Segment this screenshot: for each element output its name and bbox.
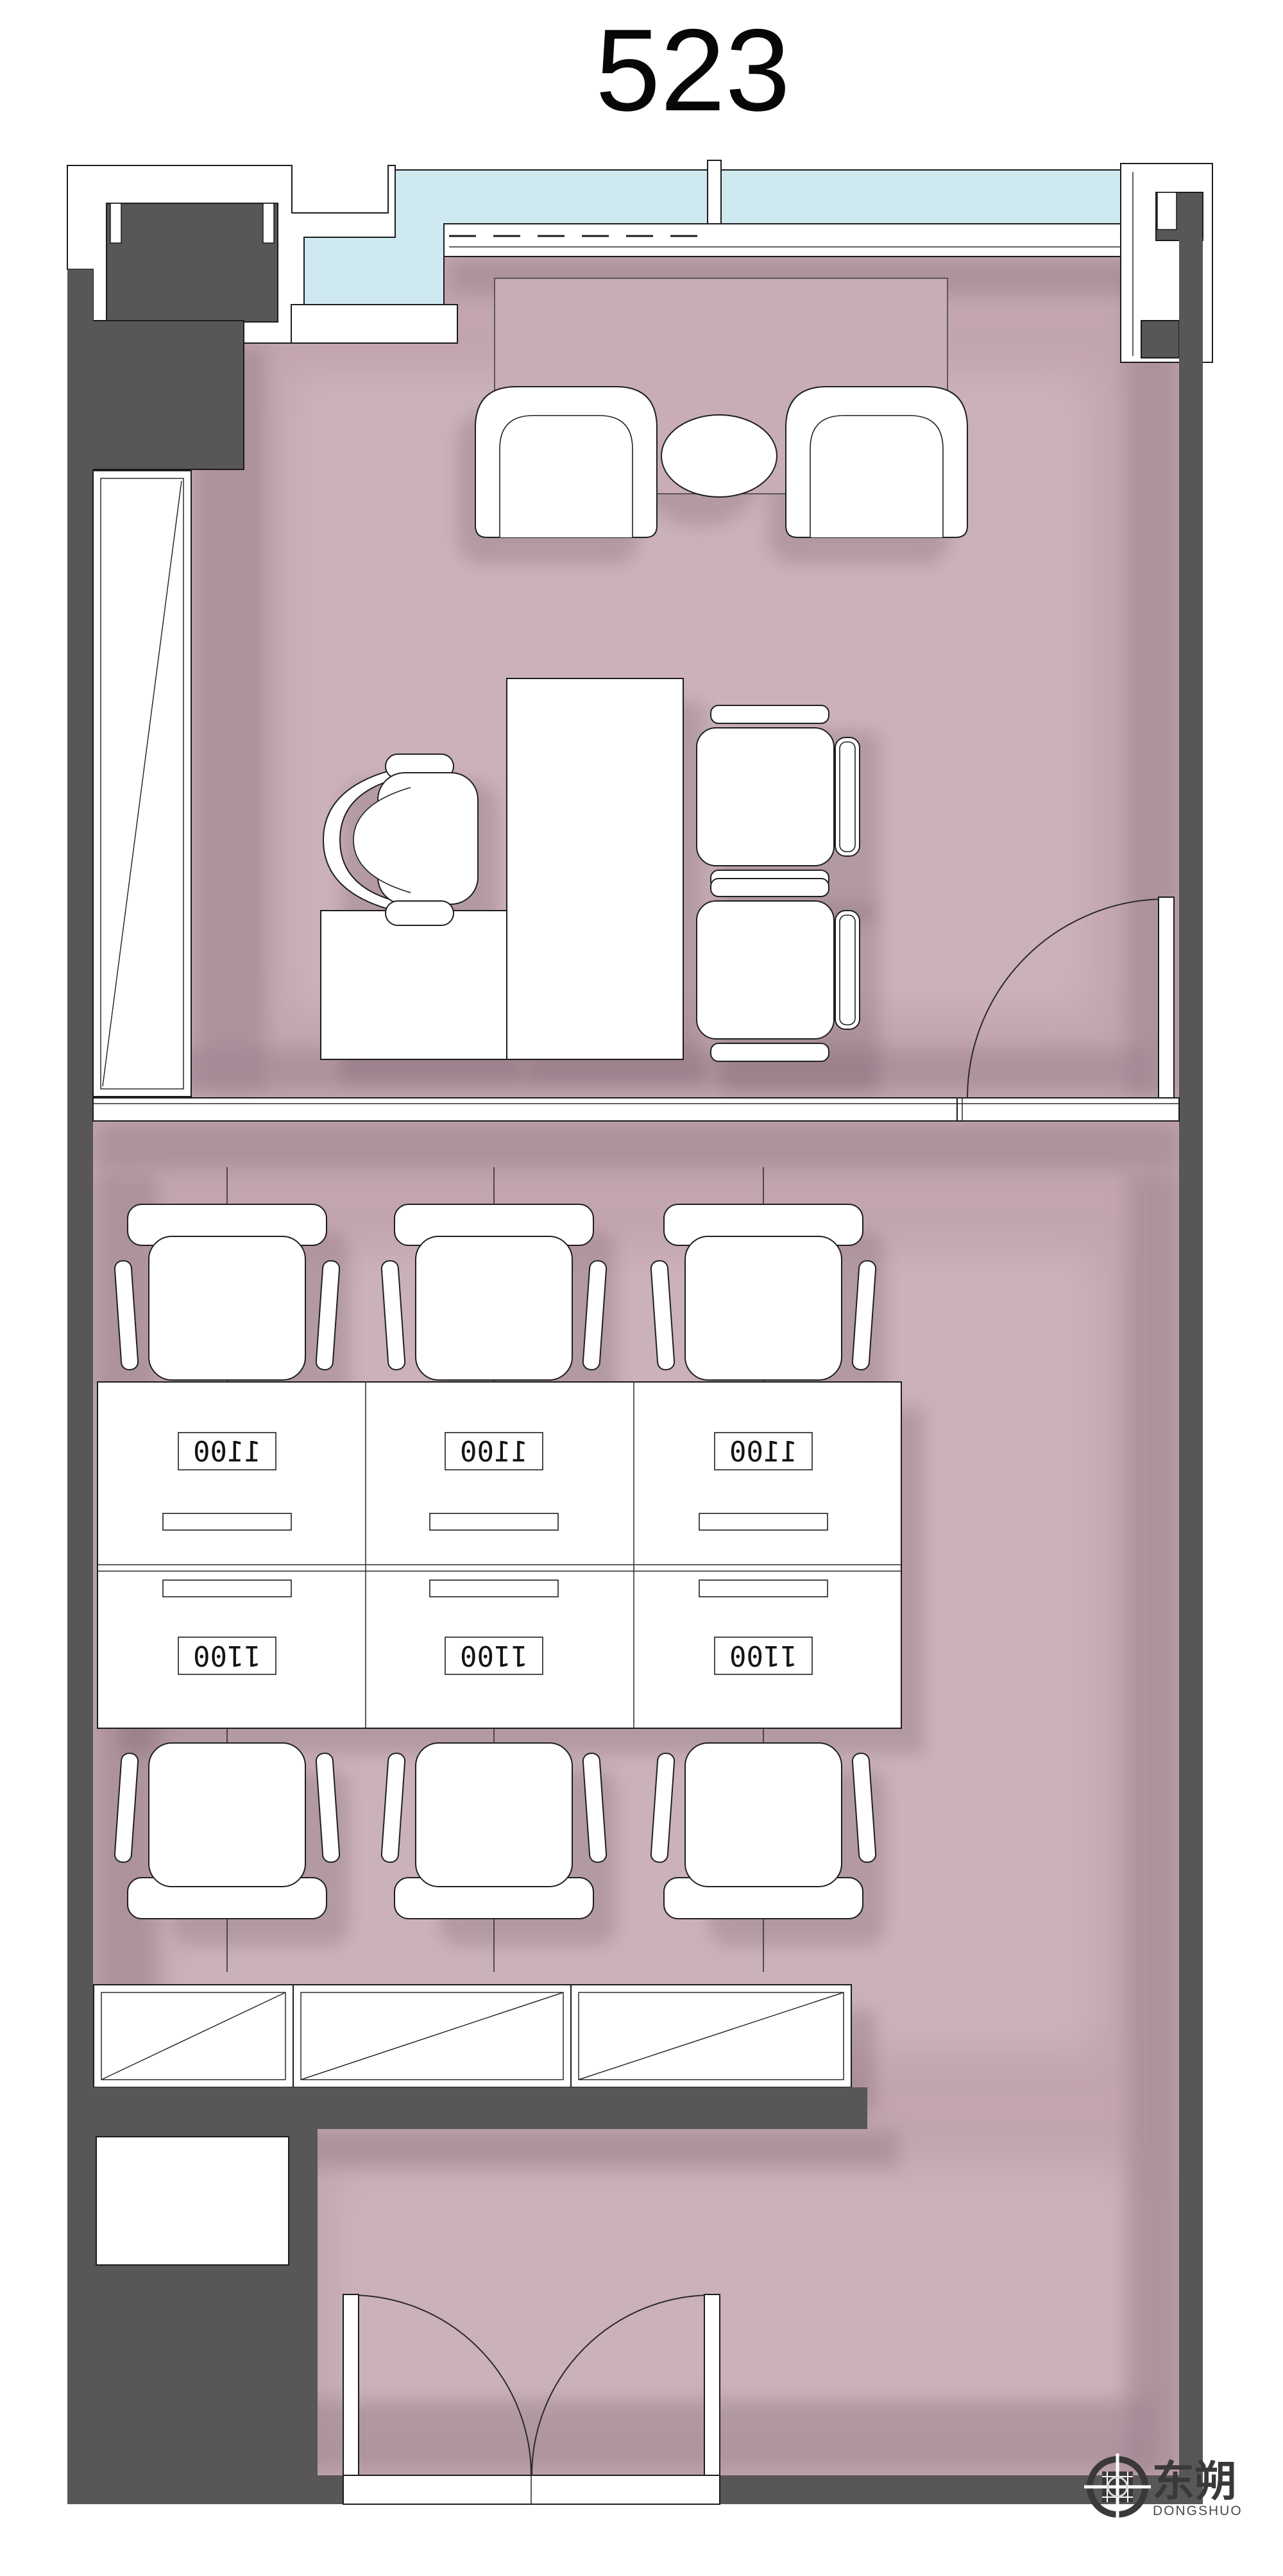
armchair-right — [786, 387, 967, 537]
room-number-title: 523 — [595, 4, 790, 135]
desk-dimension-text: 1100 — [729, 1436, 797, 1469]
desk-dimension-label: 1100 — [445, 1637, 543, 1674]
guest-chair-armrest — [711, 705, 829, 723]
wall-bottom-left — [67, 2475, 343, 2504]
desk-dimension-label: 1100 — [178, 1433, 276, 1470]
desk-drawer — [430, 1580, 558, 1597]
desk-dimension-text: 1100 — [460, 1639, 528, 1672]
desk-drawer — [163, 1513, 291, 1530]
desk-dimension-text: 1100 — [193, 1436, 261, 1469]
desk-dimension-label: 1100 — [178, 1637, 276, 1674]
window-sill — [444, 224, 1143, 257]
desk-drawer — [699, 1580, 828, 1597]
desk-dimension-text: 1100 — [193, 1639, 261, 1672]
window-mullion — [708, 160, 721, 225]
wall-step-right — [1141, 321, 1179, 358]
wall-under-cabinets — [67, 2087, 867, 2129]
window-sill-left — [291, 305, 457, 343]
logo: 东朔 DONGSHUO — [1084, 2454, 1243, 2520]
desk-drawer — [699, 1513, 828, 1530]
guest-chair-seat — [697, 901, 834, 1039]
cabinet-tall-left — [93, 471, 191, 1097]
executive-chair-armrest-bottom — [386, 901, 454, 925]
guest-chair-armrest — [711, 1043, 829, 1061]
column-slot-right — [263, 203, 274, 243]
logo-text-en: DONGSHUO — [1153, 2504, 1243, 2518]
storage-cabinet — [293, 1985, 571, 2087]
door-leaf-left — [343, 2294, 359, 2475]
bench-desk-block: 1100 1100 1100 1100 1100 1100 — [98, 1382, 901, 1728]
storage-cabinets-row — [94, 1985, 851, 2087]
logo-text-cn: 东朔 — [1152, 2457, 1237, 2506]
door-leaf-right — [704, 2294, 720, 2475]
desk-dimension-label: 1100 — [445, 1433, 543, 1470]
door-leaf — [1159, 897, 1174, 1098]
service-shaft — [96, 2137, 289, 2265]
executive-desk — [507, 678, 683, 1059]
guest-chair-seat — [697, 728, 834, 866]
task-chairs-row-2 — [114, 1743, 876, 1919]
desk-dimension-text: 1100 — [729, 1639, 797, 1672]
task-chairs-row-1 — [114, 1204, 876, 1380]
desk-dimension-text: 1100 — [460, 1436, 528, 1469]
partition-wall — [93, 1098, 1179, 1121]
column-slot-top-right — [1157, 192, 1177, 230]
wall-right — [1179, 239, 1203, 2504]
column-slot-left — [110, 203, 121, 243]
storage-cabinet — [571, 1985, 851, 2087]
desk-dimension-label: 1100 — [715, 1637, 812, 1674]
desk-return-credenza — [321, 911, 507, 1059]
desk-drawer — [163, 1580, 291, 1597]
storage-cabinet — [94, 1985, 293, 2087]
desk-dimension-label: 1100 — [715, 1433, 812, 1470]
side-table — [661, 415, 777, 497]
floor-plan-page: 523 — [0, 0, 1283, 2576]
armchair-left — [475, 387, 657, 537]
desk-drawer — [430, 1513, 558, 1530]
guest-chair-armrest — [711, 879, 829, 897]
